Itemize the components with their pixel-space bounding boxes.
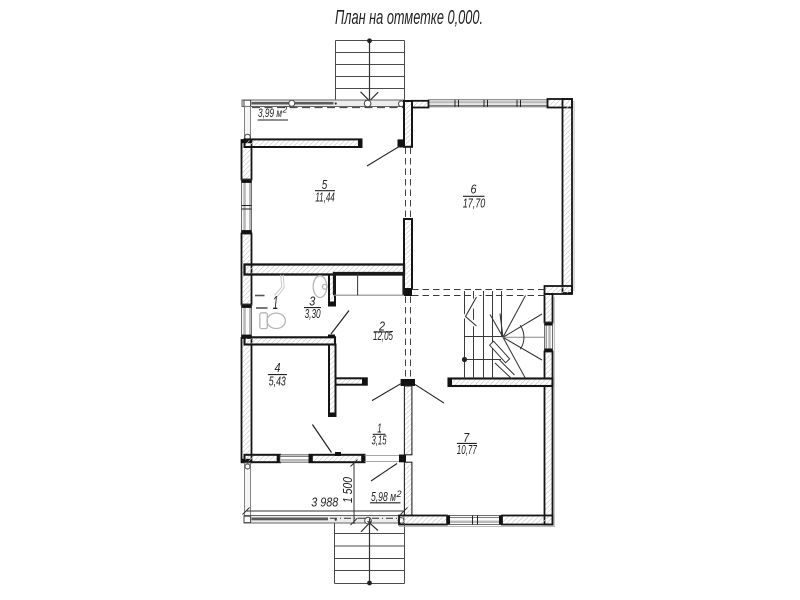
svg-text:3,30: 3,30 bbox=[305, 306, 321, 321]
svg-text:3,15: 3,15 bbox=[372, 432, 387, 447]
svg-text:10,77: 10,77 bbox=[457, 442, 477, 457]
svg-text:1 500: 1 500 bbox=[340, 476, 355, 503]
svg-text:5,43: 5,43 bbox=[269, 373, 287, 388]
svg-text:План на отметке 0,000.: План на отметке 0,000. bbox=[335, 7, 483, 29]
svg-text:17,70: 17,70 bbox=[463, 195, 486, 210]
svg-text:3 988: 3 988 bbox=[311, 495, 339, 510]
svg-text:12,05: 12,05 bbox=[373, 328, 393, 343]
svg-text:11,44: 11,44 bbox=[315, 189, 335, 204]
svg-text:1: 1 bbox=[273, 293, 279, 313]
svg-text:2: 2 bbox=[282, 105, 288, 115]
svg-text:3,99 м: 3,99 м bbox=[258, 108, 282, 120]
svg-text:5,98 м: 5,98 м bbox=[371, 490, 396, 504]
svg-text:2: 2 bbox=[396, 489, 402, 499]
